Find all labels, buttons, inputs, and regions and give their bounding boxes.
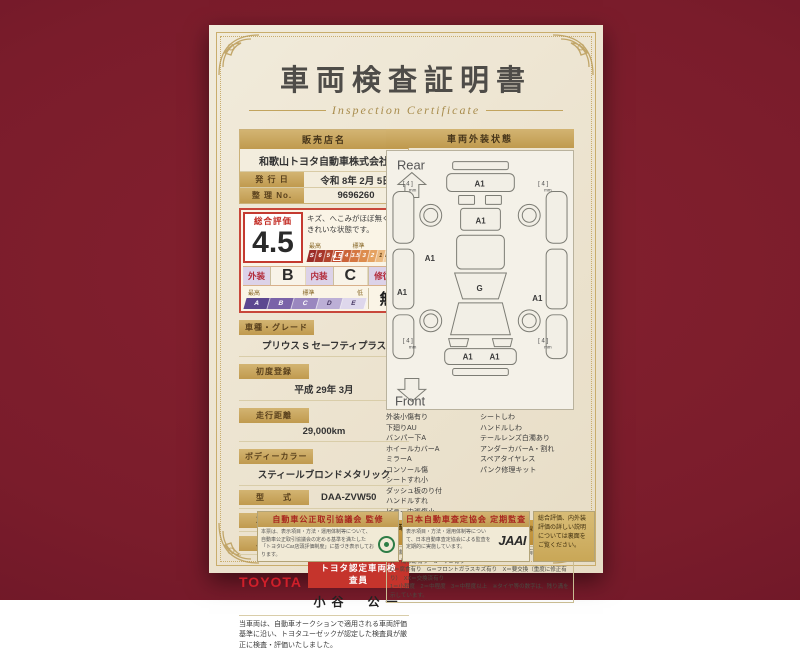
field-label: 型 式: [239, 490, 309, 505]
fair-trade-text: 本票は、表示項目・方法・運用体制等について、自動車公正取引協議会の定める基準を満…: [261, 529, 375, 559]
field-label: 初度登録: [239, 364, 309, 379]
jaai-body: 表示項目・方法・運用体制等について、日本自動車査定協会による監査を定期的に実施し…: [403, 527, 529, 554]
grade-scale-row: 最高 標準 低 A B C D E 無: [243, 288, 405, 309]
damage-mark: A1: [397, 288, 408, 297]
damage-mark: A1: [532, 294, 543, 303]
legend-item: ホイールカバーA: [386, 445, 480, 456]
legend-item: 外装小傷有り: [386, 413, 480, 424]
field-value: 29,000km: [239, 423, 409, 438]
damage-mark: A1: [463, 353, 474, 362]
certificate-subtitle-row: Inspection Certificate: [249, 103, 563, 118]
fair-trade-header: 自動車公正取引協議会 監修: [258, 512, 398, 527]
certificate-title: 車両検査証明書: [209, 57, 603, 99]
field-model-grade: 車種・グレード プリウス S セーフティプラス: [239, 317, 409, 357]
left-column: 販売店名 和歌山トヨタ自動車株式会社 発 行 日 令和 8年 2月 5日 整 理…: [239, 129, 409, 651]
legend-item: 下廻りAU: [386, 424, 480, 435]
legend-item: スペアタイヤレス: [480, 455, 574, 466]
condition-legend: 外装小傷有り 下廻りAU バンパー下A ホイールカバーA ミラーA コンソール傷…: [386, 413, 574, 518]
exterior-condition-header: 車両外装状態: [386, 129, 574, 148]
grade-scale-labels: 最高 標準 低: [245, 288, 366, 297]
exterior-condition-diagram: Rear: [386, 150, 574, 410]
overall-rating-row: 総合評価 4.5 キズ、へこみがほぼ無く、きれいな状態です。 最高 標準 低 S…: [243, 212, 405, 263]
grade-segment: E: [340, 298, 367, 309]
jaai-box: 日本自動車査定協会 定期監査 表示項目・方法・運用体制等について、日本自動車査定…: [402, 511, 530, 562]
backside-note-text: 総合評価、内外装評価の詳しい説明については裏面をご覧ください。: [534, 512, 594, 554]
fair-trade-body: 本票は、表示項目・方法・運用体制等について、自動車公正取引協議会の定める基準を満…: [258, 527, 398, 561]
field-label: 車種・グレード: [239, 320, 314, 335]
glass-mark: G: [477, 284, 483, 293]
field-value: スティールブロンドメタリック: [239, 464, 409, 482]
interior-grade-value: C: [334, 267, 369, 285]
symbol-legend-line: C＝腐食有り G＝フロントガラスキズ有り X＝要交換（重度に修正有り） XX＝交…: [390, 566, 570, 583]
jaai-text: 表示項目・方法・運用体制等について、日本自動車査定協会による監査を定期的に実施し…: [406, 529, 495, 552]
legend-item: シートすれ小: [386, 476, 480, 487]
legend-item: テールレンズ白濁あり: [480, 434, 574, 445]
legend-left-column: 外装小傷有り 下廻りAU バンパー下A ホイールカバーA ミラーA コンソール傷…: [386, 413, 480, 518]
certificate-subtitle: Inspection Certificate: [332, 103, 480, 118]
grade-scale-wrap: 最高 標準 低 A B C D E: [243, 288, 368, 309]
field-mileage: 走行距離 29,000km: [239, 405, 409, 442]
damage-mark: A1: [475, 180, 486, 189]
fair-trade-council-box: 自動車公正取引協議会 監修 本票は、表示項目・方法・運用体制等について、自動車公…: [257, 511, 399, 562]
flourish-line: [486, 110, 563, 111]
field-label: ボディーカラー: [239, 449, 313, 464]
exterior-grade-label: 外装: [243, 267, 271, 285]
legend-item: パンク修理キット: [480, 466, 574, 477]
serial-number-row: 整 理 No. 9696260: [240, 188, 408, 203]
damage-mark: A1: [489, 353, 500, 362]
jaai-header: 日本自動車査定協会 定期監査: [403, 512, 529, 527]
flourish-line: [249, 110, 326, 111]
legend-item: ハンドルすれ: [386, 497, 480, 508]
legend-item: バンパー下A: [386, 434, 480, 445]
legend-item: ダッシュ板のり付: [386, 487, 480, 498]
damage-mark: A1: [425, 254, 436, 263]
grade-row: 外装 B 内装 C 修復歴: [243, 266, 405, 286]
wheel-tread-unit: mm: [544, 345, 552, 350]
toyota-logo: TOYOTA: [239, 574, 302, 590]
damage-mark: A1: [476, 216, 487, 225]
jaai-logo: JAAI: [498, 533, 526, 548]
scale-mid-label: 標準: [302, 288, 314, 297]
photo-background: 車両検査証明書 Inspection Certificate 販売店名 和歌山ト…: [0, 0, 800, 600]
grade-segment: A: [243, 298, 270, 309]
field-body-color: ボディーカラー スティールブロンドメタリック: [239, 446, 409, 486]
backside-note-box: 総合評価、内外装評価の詳しい説明については裏面をご覧ください。: [533, 511, 595, 562]
serial-number-label: 整 理 No.: [240, 188, 304, 203]
wheel-tread-unit: mm: [544, 187, 552, 192]
field-label: 走行距離: [239, 408, 309, 423]
scale-low-label: 低: [357, 288, 363, 297]
exterior-grade-value: B: [271, 267, 306, 285]
legend-item: アンダーカバーA・割れ: [480, 445, 574, 456]
dealer-name: 和歌山トヨタ自動車株式会社: [240, 149, 408, 172]
dealer-header: 販売店名: [240, 130, 408, 149]
scale-mid-label: 標準: [352, 241, 364, 250]
overall-score-box: 総合評価 4.5: [243, 212, 303, 263]
inspection-disclaimer: 当車両は、自動車オークションで適用される車両評価基準に沿い、トヨタユーゼックが認…: [239, 620, 409, 651]
issue-date-label: 発 行 日: [240, 172, 304, 187]
legend-item: コンソール傷: [386, 466, 480, 477]
fair-trade-emblem-icon: [378, 536, 395, 553]
field-value: 平成 29年 3月: [239, 379, 409, 397]
overall-score-value: 4.5: [245, 227, 301, 259]
grade-segment: C: [292, 298, 319, 309]
field-value: プリウス S セーフティプラス: [239, 335, 409, 353]
symbol-legend-line: 1＝小程度 2＝中程度 3＝中程度以上 ※タイヤ等の数字は、残り溝を示しています…: [390, 583, 570, 600]
front-direction-label: Front: [395, 393, 426, 408]
rating-section: 総合評価 4.5 キズ、へこみがほぼ無く、きれいな状態です。 最高 標準 低 S…: [239, 208, 409, 313]
wheel-tread-unit: mm: [409, 187, 417, 192]
scale-high-label: 最高: [248, 288, 260, 297]
wheel-tread-unit: mm: [409, 345, 417, 350]
scale-high-label: 最高: [309, 241, 321, 250]
issue-date-row: 発 行 日 令和 8年 2月 5日: [240, 172, 408, 188]
field-first-registration: 初度登録 平成 29年 3月: [239, 361, 409, 401]
field-model-code: 型 式 DAA-ZVW50: [239, 490, 409, 509]
legend-right-column: シートしわ ハンドルしわ テールレンズ白濁あり アンダーカバーA・割れ スペアタ…: [480, 413, 574, 518]
dealer-section: 販売店名 和歌山トヨタ自動車株式会社 発 行 日 令和 8年 2月 5日 整 理…: [239, 129, 409, 204]
grade-segment: D: [316, 298, 343, 309]
inspector-section: TOYOTA トヨタ認定車両検査員 小谷 公一: [239, 560, 409, 616]
legend-item: ミラーA: [386, 455, 480, 466]
grade-segment: B: [268, 298, 295, 309]
grade-scale-bar: A B C D E: [243, 298, 367, 309]
interior-grade-label: 内装: [306, 267, 334, 285]
car-exploded-view: Rear: [387, 151, 573, 409]
certificate-document: 車両検査証明書 Inspection Certificate 販売店名 和歌山ト…: [209, 25, 603, 573]
rear-direction-label: Rear: [397, 158, 426, 173]
footer-row: 自動車公正取引協議会 監修 本票は、表示項目・方法・運用体制等について、自動車公…: [257, 511, 595, 562]
legend-item: シートしわ: [480, 413, 574, 424]
legend-item: ハンドルしわ: [480, 424, 574, 435]
